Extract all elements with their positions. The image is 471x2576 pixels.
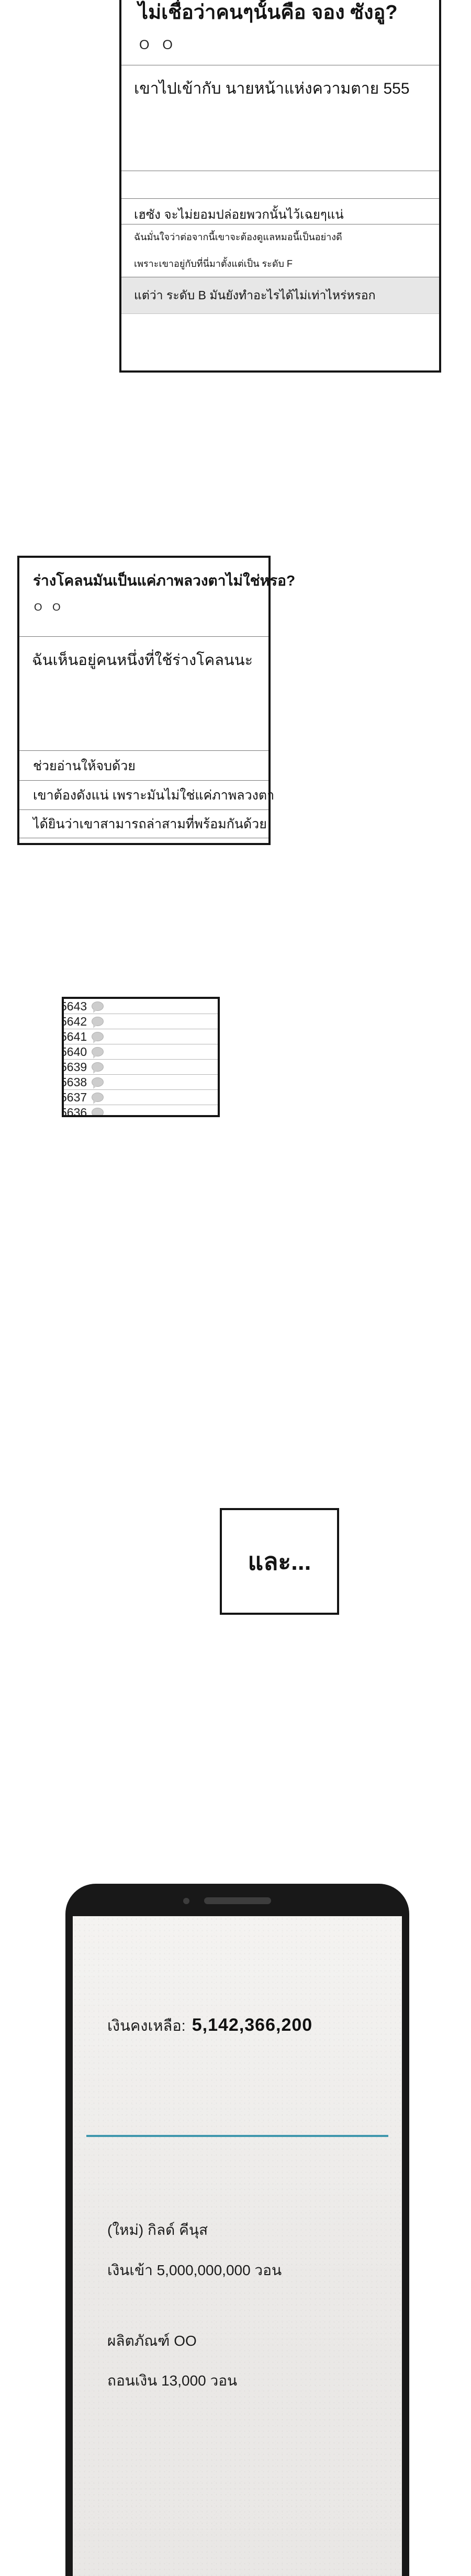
divider bbox=[121, 198, 439, 199]
comment-text: ช่วยอ่านให้จบด้วย bbox=[19, 756, 136, 777]
post-author: O O bbox=[139, 38, 177, 53]
comment-row-highlighted: แต่ว่า ระดับ B มันยังทำอะไรได้ไม่เท่าไหร… bbox=[121, 277, 439, 314]
post-author: O O bbox=[34, 602, 64, 614]
comment-bubble-icon bbox=[92, 1032, 104, 1041]
phone-mockup: เงินคงเหลือ: 5,142,366,200 (ใหม่) กิลด์ … bbox=[65, 1884, 409, 2576]
comment-text-line2: เพราะเขาอยู่กับที่นี่มาตั้งแต่เป็น ระดับ… bbox=[134, 256, 293, 271]
comment-text: แต่ว่า ระดับ B มันยังทำอะไรได้ไม่เท่าไหร… bbox=[121, 286, 376, 305]
comment-row: ช่วยอ่านให้จบด้วย bbox=[19, 750, 268, 781]
post-list-item[interactable]: 5642 bbox=[64, 1014, 218, 1029]
balance-row: เงินคงเหลือ: 5,142,366,200 bbox=[107, 2013, 312, 2038]
accent-divider bbox=[86, 2135, 388, 2137]
comment-bubble-icon bbox=[92, 1002, 104, 1011]
comment-bubble-icon bbox=[92, 1093, 104, 1102]
comment-row: ได้ยินว่าเขาสามารถล่าสามที่พร้อมกันด้วย bbox=[19, 809, 268, 838]
post-number: 5643 bbox=[62, 999, 87, 1014]
phone-speaker-slot-icon bbox=[204, 1897, 271, 1904]
comment-text: ได้ยินว่าเขาสามารถล่าสามที่พร้อมกันด้วย bbox=[19, 814, 267, 835]
transaction-deposit: เงินเข้า 5,000,000,000 วอน bbox=[107, 2259, 282, 2282]
banking-app-screen: เงินคงเหลือ: 5,142,366,200 (ใหม่) กิลด์ … bbox=[73, 1916, 402, 2576]
post-list-item[interactable]: 5643 bbox=[64, 999, 218, 1014]
post-list-item[interactable]: 5639 bbox=[64, 1060, 218, 1075]
post-list-item[interactable]: 5641 bbox=[64, 1029, 218, 1044]
post-number: 5639 bbox=[62, 1060, 87, 1074]
divider bbox=[121, 224, 439, 224]
post-list-item[interactable]: 5640 bbox=[64, 1044, 218, 1060]
forum-post-panel-2: ร่างโคลนมันเป็นแค่ภาพลวงตาไม่ใช่หรอ? O O… bbox=[17, 556, 271, 845]
comment-text: เขาไปเข้ากับ นายหน้าแห่งความตาย 555 bbox=[134, 76, 410, 101]
caption-box: และ... bbox=[220, 1508, 339, 1615]
comment-bubble-icon bbox=[92, 1108, 104, 1117]
post-list-item[interactable]: 5638 bbox=[64, 1075, 218, 1090]
post-number: 5642 bbox=[62, 1015, 87, 1029]
post-number: 5636 bbox=[62, 1106, 87, 1118]
post-number: 5638 bbox=[62, 1075, 87, 1089]
phone-camera-dot-icon bbox=[183, 1898, 189, 1904]
comment-text: เขาต้องดังแน่ เพราะมันไม่ใช่แค่ภาพลวงตา bbox=[19, 785, 274, 806]
transaction-withdrawal: ถอนเงิน 13,000 วอน bbox=[107, 2369, 237, 2392]
divider bbox=[121, 171, 439, 171]
post-list-item[interactable]: 5636 bbox=[64, 1105, 218, 1117]
comment-bubble-icon bbox=[92, 1062, 104, 1072]
comment-bubble-icon bbox=[92, 1017, 104, 1026]
divider bbox=[19, 838, 268, 838]
forum-post-panel-1: ไม่เชื่อว่าคนๆนั้นคือ จอง ซังอู? O O เขา… bbox=[119, 0, 441, 373]
comment-text: เฮซัง จะไม่ยอมปล่อยพวกนั้นไว้เฉยๆแน่ bbox=[134, 204, 344, 224]
balance-value: 5,142,366,200 bbox=[192, 2015, 312, 2035]
post-title: ไม่เชื่อว่าคนๆนั้นคือ จอง ซังอู? bbox=[138, 0, 398, 28]
comment-text: ฉันเห็นอยู่คนหนึ่งที่ใช้ร่างโคลนนะ bbox=[32, 648, 253, 672]
post-list-item[interactable]: 5637 bbox=[64, 1090, 218, 1105]
comment-row: เขาต้องดังแน่ เพราะมันไม่ใช่แค่ภาพลวงตา bbox=[19, 780, 268, 810]
forum-post-list-panel: 5643 5642 5641 5640 5639 5638 5637 5636 bbox=[62, 997, 220, 1117]
post-title: ร่างโคลนมันเป็นแค่ภาพลวงตาไม่ใช่หรอ? bbox=[33, 569, 295, 592]
balance-label: เงินคงเหลือ: bbox=[107, 2013, 186, 2038]
webtoon-page: ไม่เชื่อว่าคนๆนั้นคือ จอง ซังอู? O O เขา… bbox=[0, 0, 471, 2576]
post-number: 5641 bbox=[62, 1030, 87, 1044]
transaction-product: ผลิตภัณฑ์ OO bbox=[107, 2330, 197, 2353]
divider bbox=[19, 636, 268, 637]
transaction-source: (ใหม่) กิลด์ คีนุส bbox=[107, 2219, 208, 2242]
comment-text-line1: ฉันมั่นใจว่าต่อจากนี้เขาจะต้องดูแลหมอนี้… bbox=[134, 229, 342, 244]
comment-bubble-icon bbox=[92, 1047, 104, 1056]
caption-text: และ... bbox=[248, 1543, 311, 1581]
divider bbox=[121, 65, 439, 65]
comment-bubble-icon bbox=[92, 1077, 104, 1087]
post-number: 5637 bbox=[62, 1090, 87, 1105]
post-number: 5640 bbox=[62, 1045, 87, 1059]
